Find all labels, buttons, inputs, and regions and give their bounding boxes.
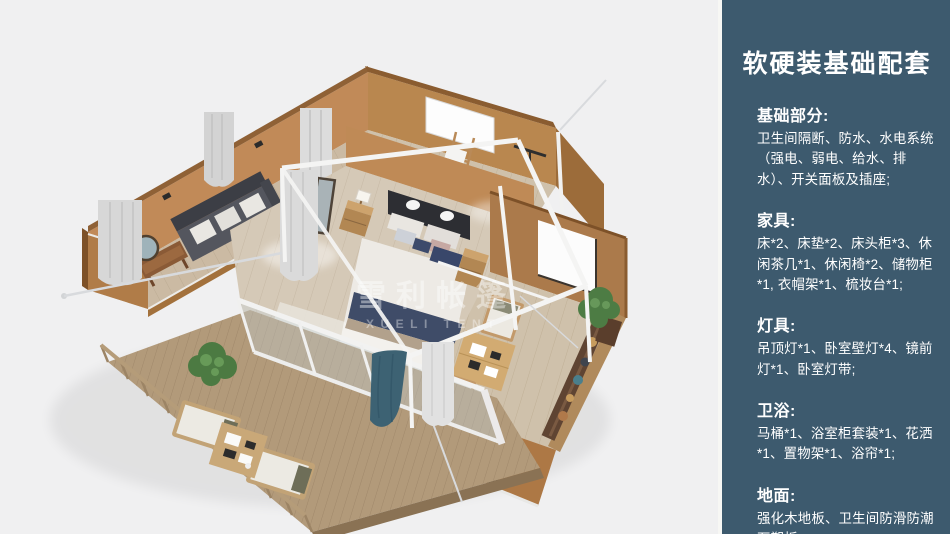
svg-text:雪利帐篷: 雪利帐篷 bbox=[356, 280, 516, 313]
section-flooring: 地面: 强化木地板、卫生间防滑防潮石塑板; bbox=[757, 482, 938, 534]
section-body: 吊顶灯*1、卧室壁灯*4、镜前灯*1、卧室灯带; bbox=[757, 339, 938, 380]
slide: 雪利帐篷 XUELI TENT 软硬装基础配套 基础部分: 卫生间隔断、防水、水… bbox=[0, 0, 950, 534]
section-basics: 基础部分: 卫生间隔断、防水、水电系统（强电、弱电、给水、排水）、开关面板及插座… bbox=[757, 102, 938, 190]
info-panel: 软硬装基础配套 基础部分: 卫生间隔断、防水、水电系统（强电、弱电、给水、排水）… bbox=[722, 0, 950, 534]
section-heading: 家具: bbox=[757, 207, 938, 231]
spec-sections: 基础部分: 卫生间隔断、防水、水电系统（强电、弱电、给水、排水）、开关面板及插座… bbox=[722, 102, 938, 534]
section-body: 强化木地板、卫生间防滑防潮石塑板; bbox=[757, 509, 938, 534]
svg-text:XUELI TENT: XUELI TENT bbox=[366, 317, 501, 331]
section-body: 卫生间隔断、防水、水电系统（强电、弱电、给水、排水）、开关面板及插座; bbox=[757, 129, 938, 190]
floorplan-render: 雪利帐篷 XUELI TENT bbox=[0, 0, 718, 534]
section-bathroom: 卫浴: 马桶*1、浴室柜套装*1、花洒*1、置物架*1、浴帘*1; bbox=[757, 397, 938, 465]
section-furniture: 家具: 床*2、床垫*2、床头柜*3、休闲茶几*1、休闲椅*2、储物柜*1, 衣… bbox=[757, 207, 938, 295]
section-heading: 基础部分: bbox=[757, 102, 938, 126]
watermark: 雪利帐篷 XUELI TENT bbox=[356, 280, 516, 331]
section-body: 马桶*1、浴室柜套装*1、花洒*1、置物架*1、浴帘*1; bbox=[757, 424, 938, 465]
section-heading: 卫浴: bbox=[757, 397, 938, 421]
section-body: 床*2、床垫*2、床头柜*3、休闲茶几*1、休闲椅*2、储物柜*1, 衣帽架*1… bbox=[757, 234, 938, 295]
section-heading: 地面: bbox=[757, 482, 938, 506]
white-curtain bbox=[422, 342, 454, 426]
panel-title: 软硬装基础配套 bbox=[722, 44, 938, 80]
section-heading: 灯具: bbox=[757, 312, 938, 336]
section-lighting: 灯具: 吊顶灯*1、卧室壁灯*4、镜前灯*1、卧室灯带; bbox=[757, 312, 938, 380]
